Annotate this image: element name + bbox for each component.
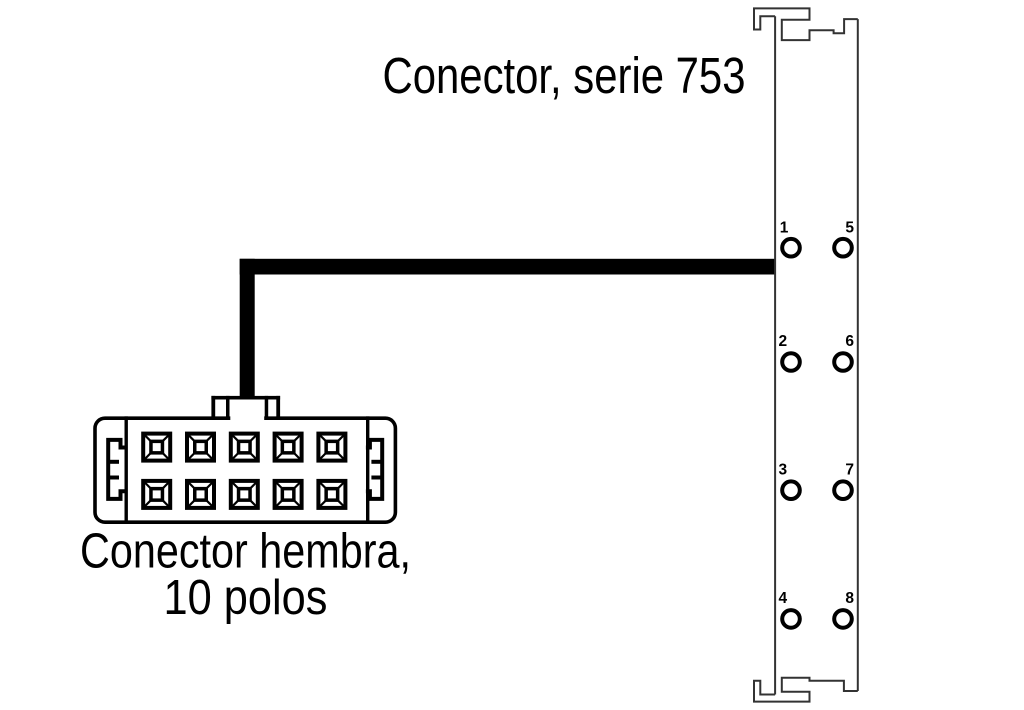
svg-text:10 polos: 10 polos bbox=[164, 570, 328, 625]
svg-text:4: 4 bbox=[779, 590, 788, 607]
svg-text:8: 8 bbox=[845, 590, 854, 607]
svg-text:5: 5 bbox=[845, 220, 854, 237]
svg-text:2: 2 bbox=[779, 333, 788, 350]
svg-text:3: 3 bbox=[779, 462, 788, 479]
svg-text:6: 6 bbox=[845, 333, 854, 350]
svg-text:1: 1 bbox=[780, 220, 789, 237]
svg-text:Conector, serie 753: Conector, serie 753 bbox=[383, 47, 746, 104]
svg-text:7: 7 bbox=[845, 462, 854, 479]
